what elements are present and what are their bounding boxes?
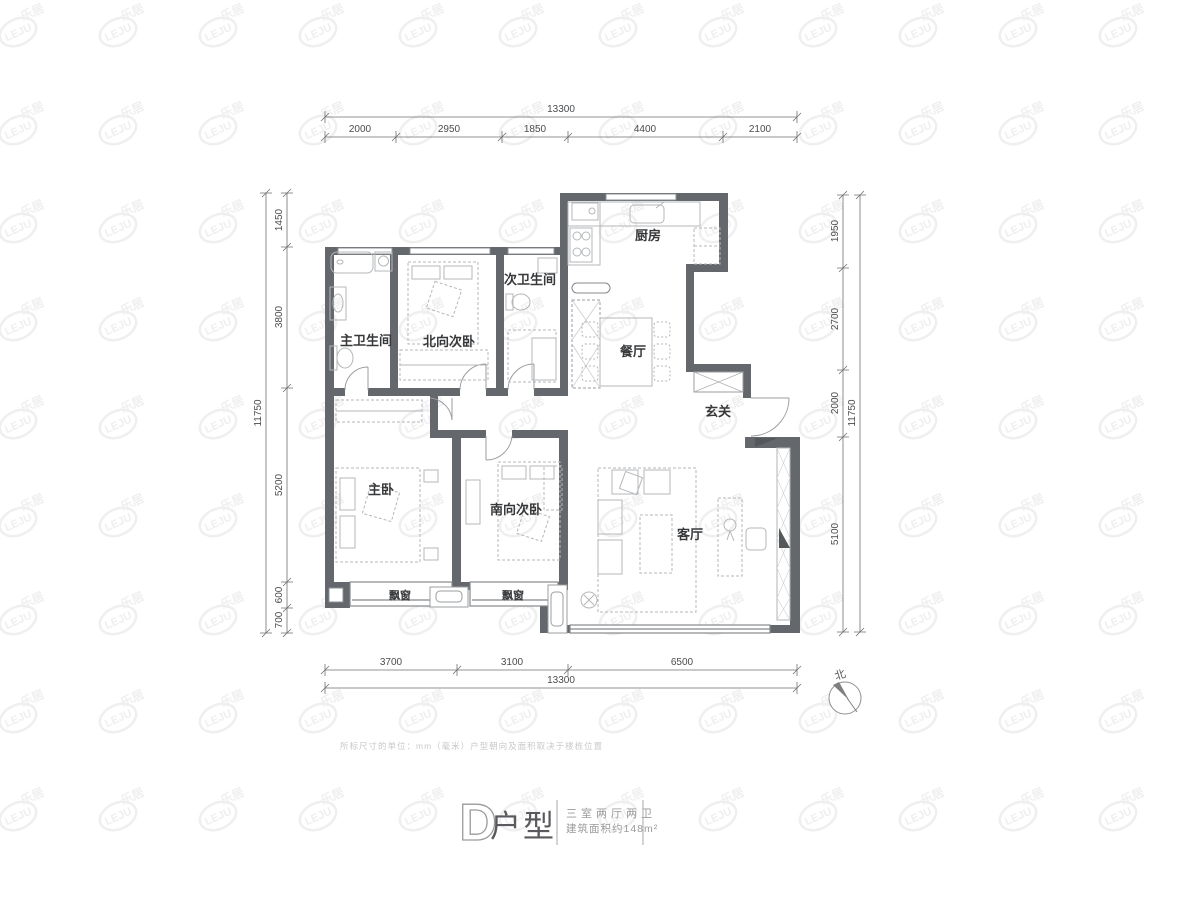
leju-watermark [0, 392, 46, 443]
leju-watermark [595, 0, 646, 51]
dim-right-total: 11750 [847, 399, 858, 427]
floor-plan-image: LEJU 乐居 [0, 0, 1200, 900]
leju-watermark [195, 294, 246, 345]
leju-watermark [895, 98, 946, 149]
leju-watermark [1095, 490, 1146, 541]
watermark-layer [0, 0, 1146, 835]
dim-right-seg-3: 5100 [830, 522, 841, 545]
leju-watermark [0, 588, 46, 639]
leju-watermark [595, 686, 646, 737]
room-label-kitchen: 厨房 [635, 228, 661, 243]
leju-watermark [395, 490, 446, 541]
leju-watermark [695, 686, 746, 737]
title-suffix: 户型 [490, 809, 556, 844]
leju-watermark [295, 784, 346, 835]
leju-watermark [495, 686, 546, 737]
dim-top-seg-0: 2000 [349, 124, 372, 135]
leju-watermark [0, 784, 46, 835]
leju-watermark [1095, 0, 1146, 51]
leju-watermark [95, 294, 146, 345]
leju-watermark [195, 784, 246, 835]
leju-watermark [995, 490, 1046, 541]
room-label-living: 客厅 [677, 527, 703, 542]
room-label-master-bath: 主卫生间 [340, 333, 392, 348]
leju-watermark [995, 294, 1046, 345]
dim-right-seg-2: 2000 [830, 391, 841, 414]
leju-watermark [95, 196, 146, 247]
leju-watermark [595, 392, 646, 443]
dim-top-seg-1: 2950 [438, 124, 461, 135]
leju-watermark [195, 686, 246, 737]
leju-watermark [895, 490, 946, 541]
leju-watermark [195, 0, 246, 51]
leju-watermark [795, 0, 846, 51]
north-arrow: 北 [829, 667, 861, 714]
leju-watermark [895, 392, 946, 443]
room-label-north-bedroom: 北向次卧 [423, 334, 475, 349]
room-label-second-bath: 次卫生间 [504, 272, 556, 287]
leju-watermark [895, 588, 946, 639]
leju-watermark [895, 0, 946, 51]
dim-bottom-seg-1: 3100 [501, 657, 524, 668]
room-label-dining: 餐厅 [619, 344, 646, 359]
leju-watermark [0, 0, 46, 51]
leju-watermark [195, 588, 246, 639]
north-label: 北 [833, 667, 847, 683]
leju-watermark [295, 196, 346, 247]
dim-left-seg-3: 600 [274, 586, 285, 603]
leju-watermark [395, 686, 446, 737]
leju-watermark [995, 784, 1046, 835]
leju-watermark [395, 196, 446, 247]
leju-watermark [695, 294, 746, 345]
leju-watermark [995, 392, 1046, 443]
leju-watermark [995, 588, 1046, 639]
leju-watermark [495, 196, 546, 247]
dim-left-seg-4: 700 [274, 611, 285, 628]
dim-right-seg-1: 2700 [830, 307, 841, 330]
dim-top-seg-2: 1850 [524, 124, 547, 135]
leju-watermark [895, 686, 946, 737]
leju-watermark [295, 98, 346, 149]
leju-watermark [1095, 294, 1146, 345]
leju-watermark [95, 784, 146, 835]
dim-left-total: 11750 [253, 399, 264, 427]
dim-bottom-seg-0: 3700 [380, 657, 403, 668]
leju-watermark [0, 294, 46, 345]
leju-watermark [1095, 98, 1146, 149]
dim-left-seg-0: 1450 [274, 208, 285, 231]
leju-watermark [295, 0, 346, 51]
leju-watermark [795, 98, 846, 149]
room-label-bay-window-1: 飘窗 [389, 588, 411, 602]
hatch-layer [572, 300, 790, 620]
leju-watermark [195, 490, 246, 541]
leju-watermark [195, 392, 246, 443]
leju-watermark [1095, 784, 1146, 835]
leju-watermark [995, 196, 1046, 247]
leju-watermark [0, 196, 46, 247]
leju-watermark [95, 0, 146, 51]
title-subtitle-area: 建筑面积约148m² [566, 822, 658, 835]
leju-watermark [995, 0, 1046, 51]
leju-watermark [695, 0, 746, 51]
room-label-foyer: 玄关 [705, 404, 731, 419]
leju-watermark [95, 490, 146, 541]
dim-top-seg-3: 4400 [634, 124, 657, 135]
leju-watermark [895, 784, 946, 835]
leju-watermark [1095, 392, 1146, 443]
leju-watermark [1095, 686, 1146, 737]
room-label-master-bedroom: 主卧 [368, 482, 394, 497]
dim-right-seg-0: 1950 [830, 219, 841, 242]
leju-watermark [95, 98, 146, 149]
dim-top-seg-4: 2100 [749, 124, 772, 135]
leju-watermark [595, 294, 646, 345]
leju-watermark [795, 784, 846, 835]
leju-watermark [1095, 196, 1146, 247]
leju-watermark [95, 392, 146, 443]
dim-left-seg-1: 3800 [274, 305, 285, 328]
leju-watermark [495, 0, 546, 51]
leju-watermark [895, 294, 946, 345]
leju-watermark [695, 98, 746, 149]
leju-watermark [995, 686, 1046, 737]
leju-watermark [195, 98, 246, 149]
leju-watermark [895, 196, 946, 247]
dim-top-total: 13300 [547, 104, 575, 115]
dim-left-seg-2: 5200 [274, 473, 285, 496]
leju-watermark [295, 686, 346, 737]
leju-watermark [1095, 588, 1146, 639]
leju-watermark [0, 686, 46, 737]
floorplan-page: { "plan": { "rooms": { "master_bath": "主… [0, 0, 1200, 900]
dim-bottom-total: 13300 [547, 675, 575, 686]
leju-watermark [295, 490, 346, 541]
leju-watermark [95, 686, 146, 737]
leju-watermark [195, 196, 246, 247]
dim-bottom-seg-2: 6500 [671, 657, 694, 668]
disclaimer-text: 所标尺寸的单位：mm（毫米）户型朝向及面积取决于楼栋位置 [340, 741, 603, 751]
room-label-south-bedroom: 南向次卧 [490, 502, 542, 517]
leju-watermark [395, 0, 446, 51]
leju-watermark [995, 98, 1046, 149]
leju-watermark [95, 588, 146, 639]
leju-watermark [395, 784, 446, 835]
leju-watermark [695, 784, 746, 835]
leju-watermark [0, 98, 46, 149]
leju-watermark [0, 490, 46, 541]
room-label-bay-window-2: 飘窗 [502, 588, 524, 602]
